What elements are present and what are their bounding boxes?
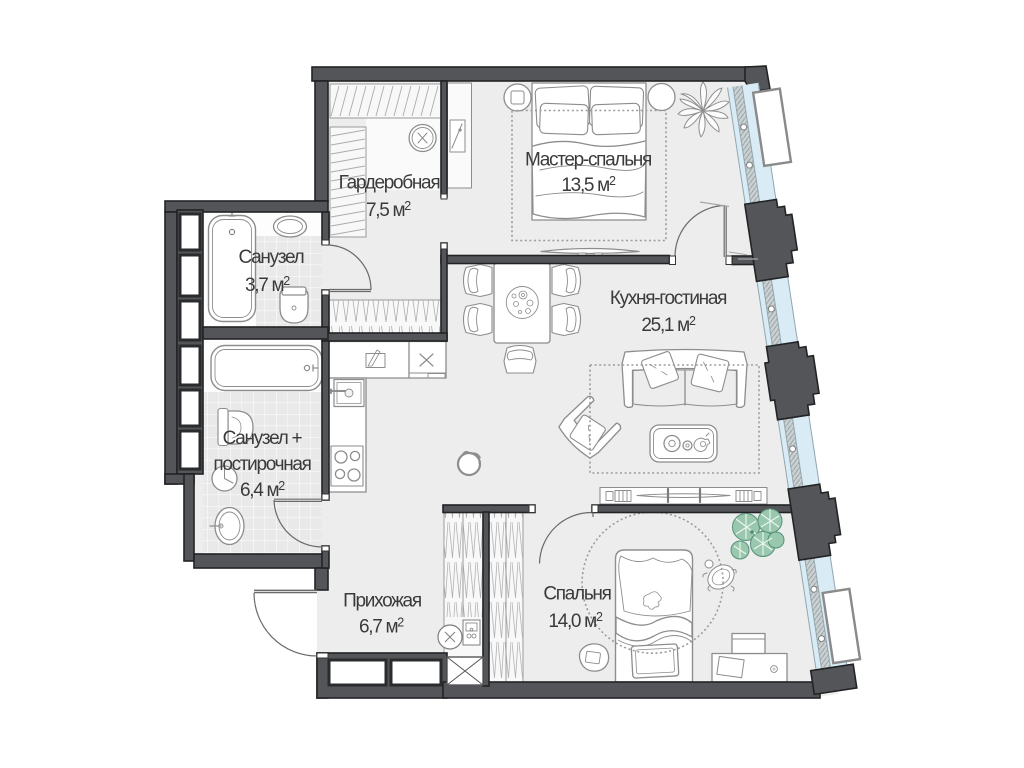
svg-text:25,1 м2: 25,1 м2 xyxy=(641,314,696,336)
svg-text:Гардеробная: Гардеробная xyxy=(339,173,440,194)
svg-text:14,0 м2: 14,0 м2 xyxy=(548,610,603,632)
svg-text:13,5 м2: 13,5 м2 xyxy=(561,174,616,196)
svg-text:постирочная: постирочная xyxy=(213,454,310,475)
svg-text:Мастер-спальня: Мастер-спальня xyxy=(525,150,651,171)
svg-text:Санузел +: Санузел + xyxy=(223,428,303,449)
svg-text:Спальня: Спальня xyxy=(543,584,610,605)
svg-text:Санузел: Санузел xyxy=(239,247,304,268)
svg-text:Кухня-гостиная: Кухня-гостиная xyxy=(610,288,726,309)
svg-text:Прихожая: Прихожая xyxy=(343,591,421,612)
